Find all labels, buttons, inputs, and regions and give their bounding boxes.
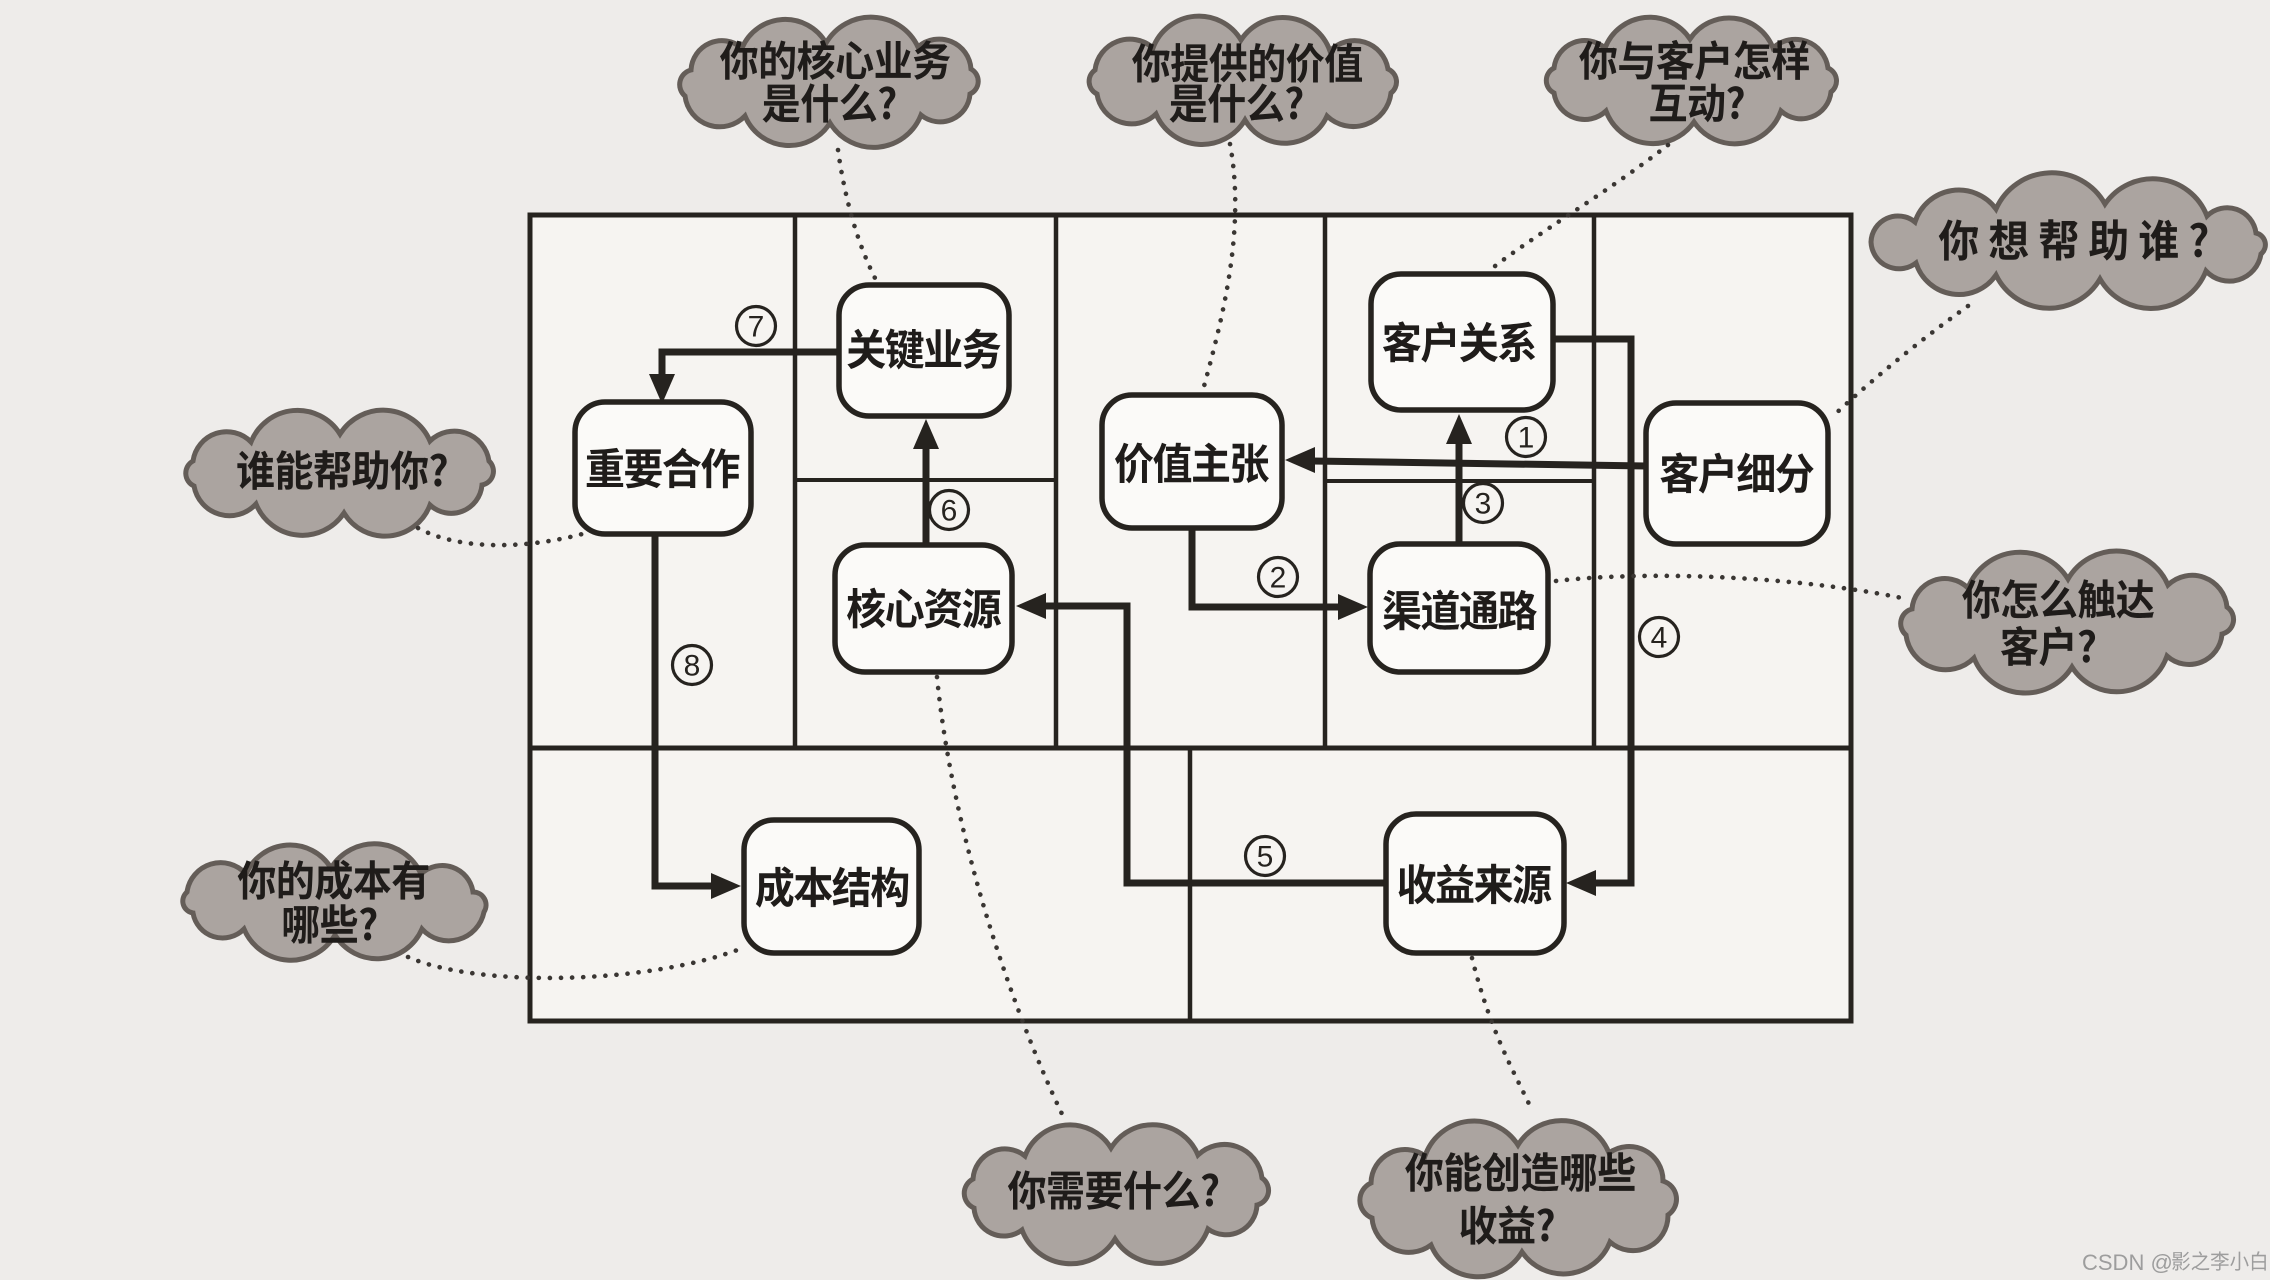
svg-text:8: 8 <box>684 650 701 683</box>
svg-text:CSDN @: CSDN @ <box>2082 1250 2173 1275</box>
svg-text:7: 7 <box>748 311 765 344</box>
svg-text:1: 1 <box>1518 422 1535 455</box>
svg-text:2: 2 <box>1270 562 1287 595</box>
svg-text:4: 4 <box>1651 622 1668 655</box>
svg-text:6: 6 <box>941 495 958 528</box>
svg-text:3: 3 <box>1475 488 1492 521</box>
svg-text:5: 5 <box>1257 841 1274 874</box>
